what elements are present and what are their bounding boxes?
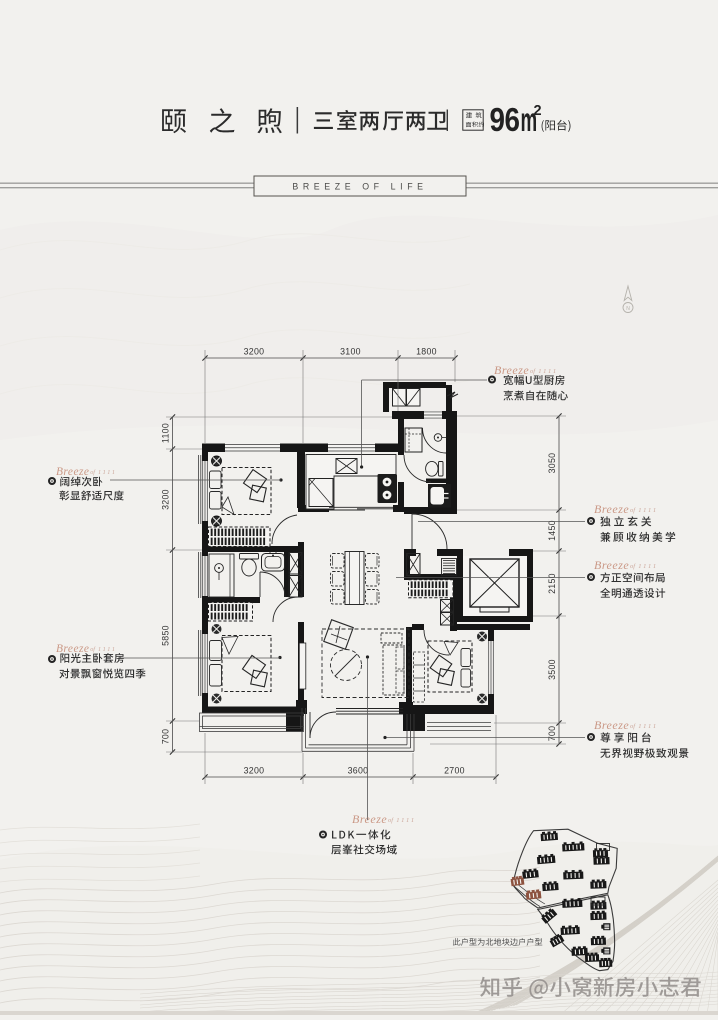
svg-text:Breeze: Breeze — [56, 643, 89, 655]
svg-text:of 1 1 1 1: of 1 1 1 1 — [630, 723, 656, 730]
svg-text:1100: 1100 — [161, 423, 171, 443]
svg-text:3200: 3200 — [161, 489, 171, 510]
svg-text:of 1 1 1 1: of 1 1 1 1 — [90, 469, 115, 476]
svg-text:2700: 2700 — [444, 766, 465, 776]
svg-text:96: 96 — [490, 101, 520, 139]
svg-text:of 1 1 1 1: of 1 1 1 1 — [530, 368, 556, 375]
svg-text:1450: 1450 — [547, 520, 557, 541]
svg-text:of 1 1 1 1: of 1 1 1 1 — [630, 563, 656, 570]
svg-text:BREEZE OF LIFE: BREEZE OF LIFE — [292, 181, 427, 191]
svg-text:N: N — [626, 306, 630, 312]
svg-text:Breeze: Breeze — [594, 502, 629, 516]
svg-text:of 1 1 1 1: of 1 1 1 1 — [388, 817, 414, 824]
svg-text:5850: 5850 — [161, 625, 171, 646]
svg-text:3500: 3500 — [547, 659, 557, 680]
svg-text:Breeze: Breeze — [594, 718, 629, 732]
svg-text:Breeze: Breeze — [494, 363, 529, 377]
svg-text:700: 700 — [547, 726, 557, 742]
svg-text:2150: 2150 — [547, 573, 557, 594]
svg-text:700: 700 — [161, 729, 171, 745]
svg-text:3100: 3100 — [340, 347, 361, 357]
svg-text:of 1 1 1 1: of 1 1 1 1 — [90, 646, 115, 653]
svg-text:3600: 3600 — [348, 766, 369, 776]
svg-text:Breeze: Breeze — [56, 466, 89, 478]
svg-text:3050: 3050 — [547, 453, 557, 474]
svg-text:2: 2 — [534, 103, 542, 119]
svg-text:3200: 3200 — [244, 347, 265, 357]
svg-text:Breeze: Breeze — [594, 558, 629, 572]
svg-text:3200: 3200 — [244, 766, 265, 776]
svg-text:of 1 1 1 1: of 1 1 1 1 — [630, 507, 656, 514]
svg-text:Breeze: Breeze — [352, 812, 387, 826]
svg-text:1800: 1800 — [416, 347, 437, 357]
